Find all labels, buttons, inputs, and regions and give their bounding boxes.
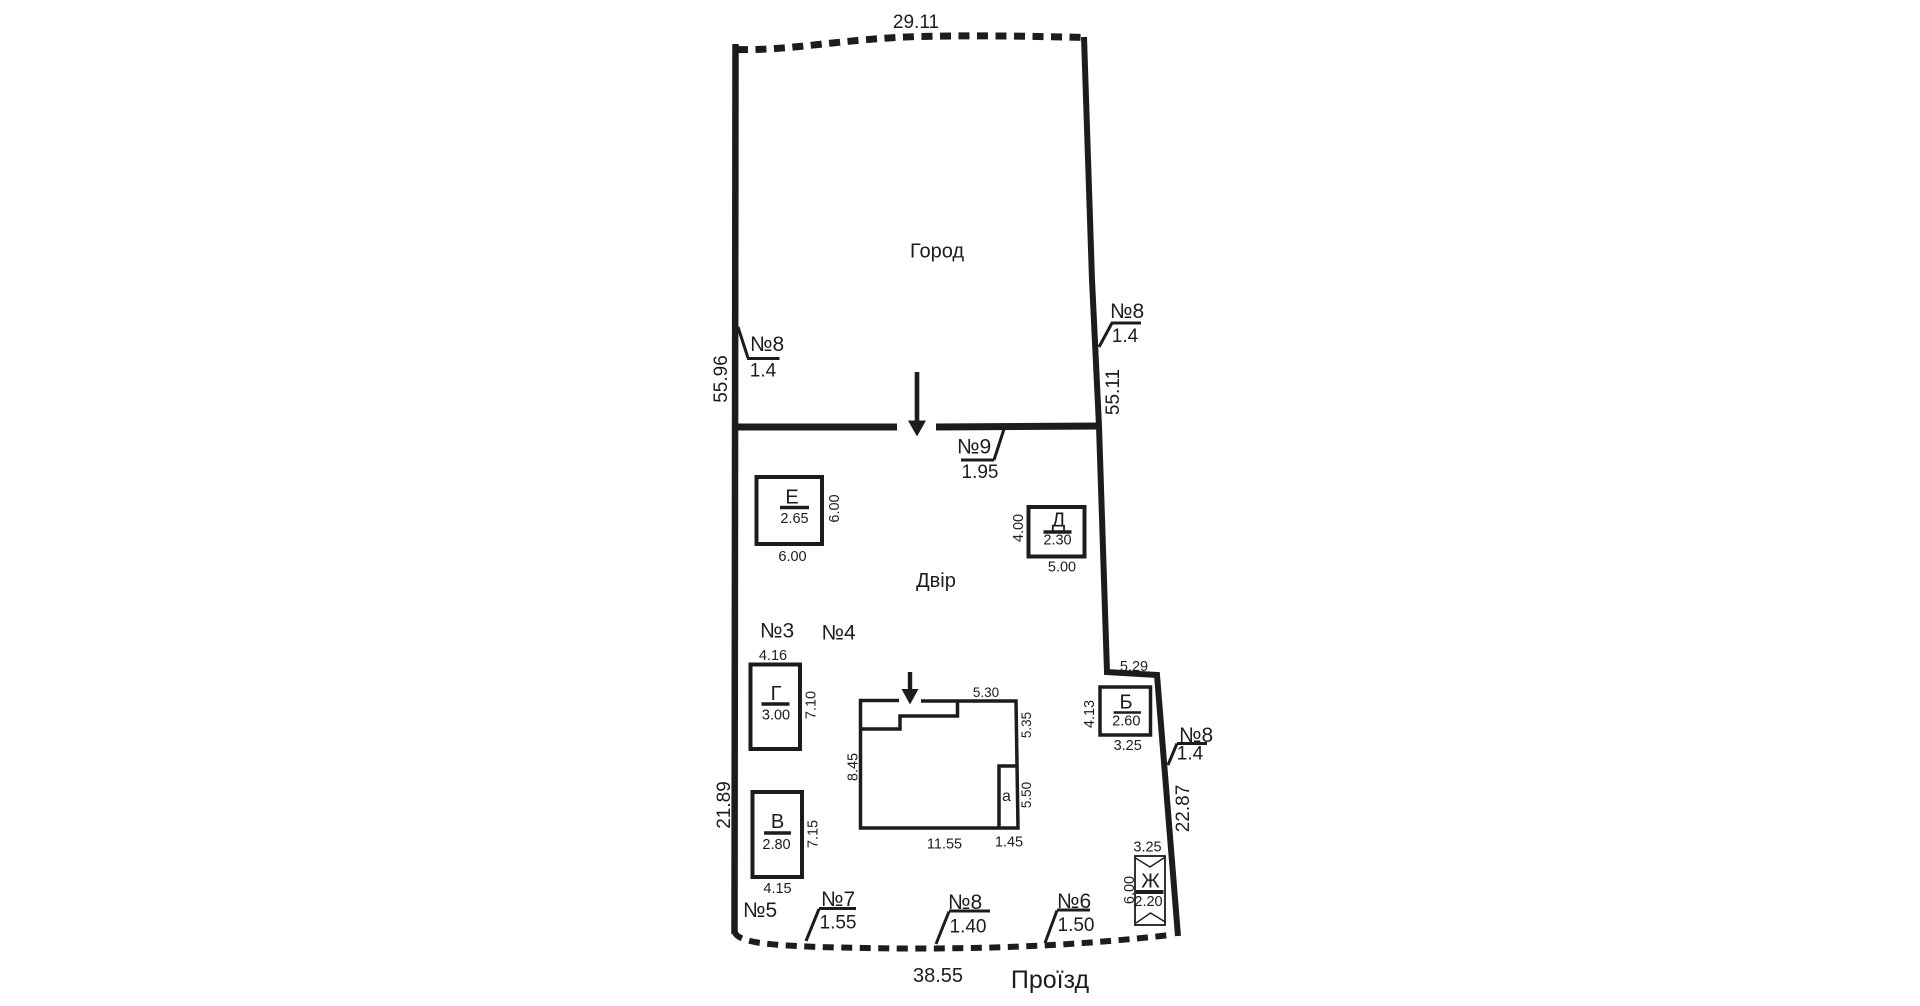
svg-text:5.00: 5.00 — [1048, 560, 1076, 576]
svg-text:4.13: 4.13 — [1082, 700, 1098, 728]
svg-text:а: а — [1002, 788, 1011, 805]
svg-text:№5: №5 — [743, 899, 777, 922]
svg-text:№9: №9 — [957, 436, 991, 459]
svg-text:1.4: 1.4 — [1177, 744, 1204, 765]
svg-text:№8: №8 — [750, 333, 784, 356]
svg-text:8.45: 8.45 — [846, 753, 862, 781]
svg-text:№6: №6 — [1057, 890, 1091, 913]
svg-text:3.25: 3.25 — [1133, 840, 1161, 856]
svg-text:6.00: 6.00 — [1122, 876, 1138, 904]
svg-text:38.55: 38.55 — [913, 965, 963, 987]
svg-text:5.50: 5.50 — [1019, 782, 1034, 808]
svg-text:21.89: 21.89 — [714, 781, 735, 829]
svg-text:Д: Д — [1052, 510, 1066, 532]
svg-text:55.96: 55.96 — [711, 355, 732, 403]
svg-text:Б: Б — [1119, 692, 1132, 714]
svg-text:1.55: 1.55 — [820, 913, 857, 934]
svg-text:2.65: 2.65 — [780, 511, 808, 527]
svg-text:29.11: 29.11 — [893, 12, 939, 33]
svg-text:1.50: 1.50 — [1058, 915, 1095, 936]
svg-text:2.20: 2.20 — [1134, 894, 1162, 910]
svg-text:Е: Е — [785, 487, 798, 509]
svg-text:5.29: 5.29 — [1120, 659, 1148, 675]
svg-text:4.00: 4.00 — [1011, 514, 1027, 542]
svg-text:№7: №7 — [821, 888, 855, 911]
svg-text:Проїзд: Проїзд — [1011, 966, 1090, 994]
svg-text:Г: Г — [771, 683, 782, 705]
svg-text:№8: №8 — [948, 891, 982, 914]
svg-text:5.35: 5.35 — [1019, 712, 1034, 738]
svg-text:3.25: 3.25 — [1114, 738, 1142, 754]
svg-text:11.55: 11.55 — [927, 837, 962, 853]
svg-text:4.16: 4.16 — [759, 648, 787, 664]
svg-text:2.80: 2.80 — [762, 837, 790, 853]
svg-text:7.10: 7.10 — [804, 691, 820, 719]
svg-text:3.00: 3.00 — [762, 708, 790, 724]
svg-text:1.95: 1.95 — [962, 462, 999, 483]
svg-text:№3: №3 — [760, 620, 794, 643]
svg-text:55.11: 55.11 — [1103, 369, 1124, 415]
svg-text:4.15: 4.15 — [763, 881, 791, 897]
svg-text:№4: №4 — [822, 622, 857, 645]
svg-text:Ж: Ж — [1141, 871, 1160, 893]
svg-text:1.4: 1.4 — [750, 361, 777, 382]
svg-text:1.4: 1.4 — [1112, 326, 1139, 347]
svg-text:6.00: 6.00 — [778, 549, 806, 565]
svg-text:7.15: 7.15 — [806, 820, 822, 848]
svg-text:22.87: 22.87 — [1173, 785, 1194, 833]
svg-text:В: В — [771, 811, 784, 833]
svg-text:1.40: 1.40 — [950, 917, 987, 938]
svg-text:5.30: 5.30 — [973, 685, 999, 700]
svg-text:Город: Город — [910, 241, 964, 263]
svg-text:6.00: 6.00 — [827, 494, 843, 522]
svg-text:1.45: 1.45 — [995, 835, 1023, 851]
svg-text:Двір: Двір — [916, 570, 956, 592]
svg-text:2.30: 2.30 — [1043, 533, 1071, 549]
svg-text:2.60: 2.60 — [1112, 714, 1140, 730]
svg-text:№8: №8 — [1110, 300, 1144, 323]
